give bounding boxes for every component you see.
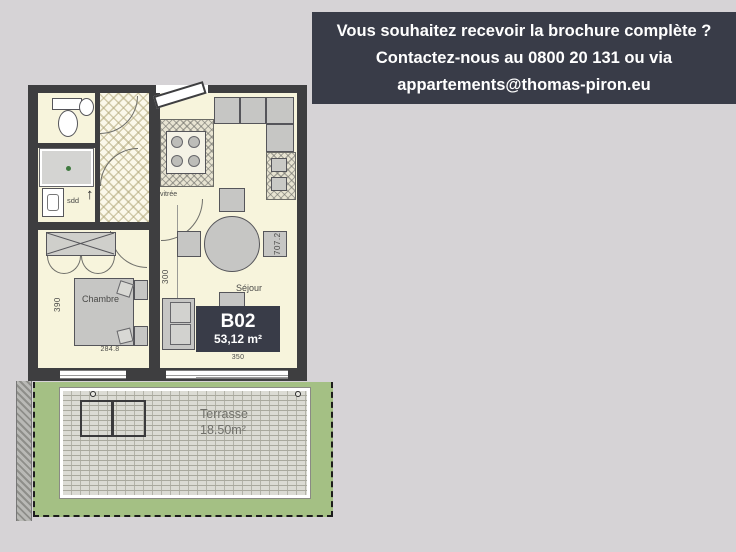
wardrobe-icon [46,232,116,256]
terrace-area-label: 18.50m² [200,422,248,438]
unit-code: B02 [221,312,256,332]
kitchen-sink-unit [266,152,296,200]
boundary-hatch-band [16,381,32,521]
dining-chair-top [219,188,245,212]
terrace-post-right [295,391,301,397]
toilet-cistern [52,98,82,110]
wall-bedroom-top [36,222,149,230]
terrace-table-half-2 [112,400,146,437]
dimension-living-section: 300 [161,250,170,284]
dining-table-icon [204,216,260,272]
room-label-bedroom: Chambre [82,294,119,304]
nightstand-top [134,280,148,300]
living-sliding-window [166,370,288,379]
wall-right [297,85,307,381]
washbasin-bowl-icon [47,194,59,211]
kitchen-counter-1 [214,97,240,124]
kitchen-counter-4 [266,124,294,152]
corner-washbasin-icon [79,98,94,116]
nightstand-bottom [134,326,148,346]
dimension-bedroom-width: 390 [53,278,62,312]
sink-bowl-icon [271,177,287,191]
unit-area: 53,12 m² [214,332,262,347]
terrace-table-half-1 [80,400,113,437]
kitchen-counter-3 [266,97,294,124]
banner-contact-email: appartements@thomas-piron.eu [312,72,736,99]
bedroom-window [60,370,126,379]
room-label-terrace: Terrasse [200,406,248,422]
stove-icon [166,131,206,174]
banner-line-2: Contactez-nous au 0800 20 131 ou via [312,45,736,72]
floorplan-page: Vous souhaitez recevoir la brochure comp… [0,0,736,552]
unit-badge: B02 53,12 m² [196,306,280,352]
wall-left [28,85,38,381]
sofa-icon [162,298,195,350]
sink-bowl-icon [271,158,287,172]
brochure-banner: Vous souhaitez recevoir la brochure comp… [312,12,736,104]
shower-tray [40,149,93,186]
terrace-post-left [90,391,96,397]
wall-mid-vertical [149,93,160,368]
dimension-living-length: 707.2 [273,215,282,255]
room-label-shower: sdd [67,196,79,205]
washbasin [42,188,64,217]
kitchen-counter-2 [240,97,266,124]
terrace-label-block: Terrasse 18.50m² [200,406,248,438]
banner-line-1: Vous souhaitez recevoir la brochure comp… [312,18,736,45]
room-label-living: Séjour [236,283,262,293]
dimension-living-width: 350 [200,354,276,361]
shower-drain-icon [66,166,71,171]
arrow-up-icon: ↑ [86,186,94,203]
dimension-bedroom-length: 284.8 [88,346,132,353]
toilet-icon [58,110,78,137]
wall-wc-divider [36,143,95,148]
dining-chair-left [177,231,201,257]
door-label-glazed: vitrée [160,191,177,198]
